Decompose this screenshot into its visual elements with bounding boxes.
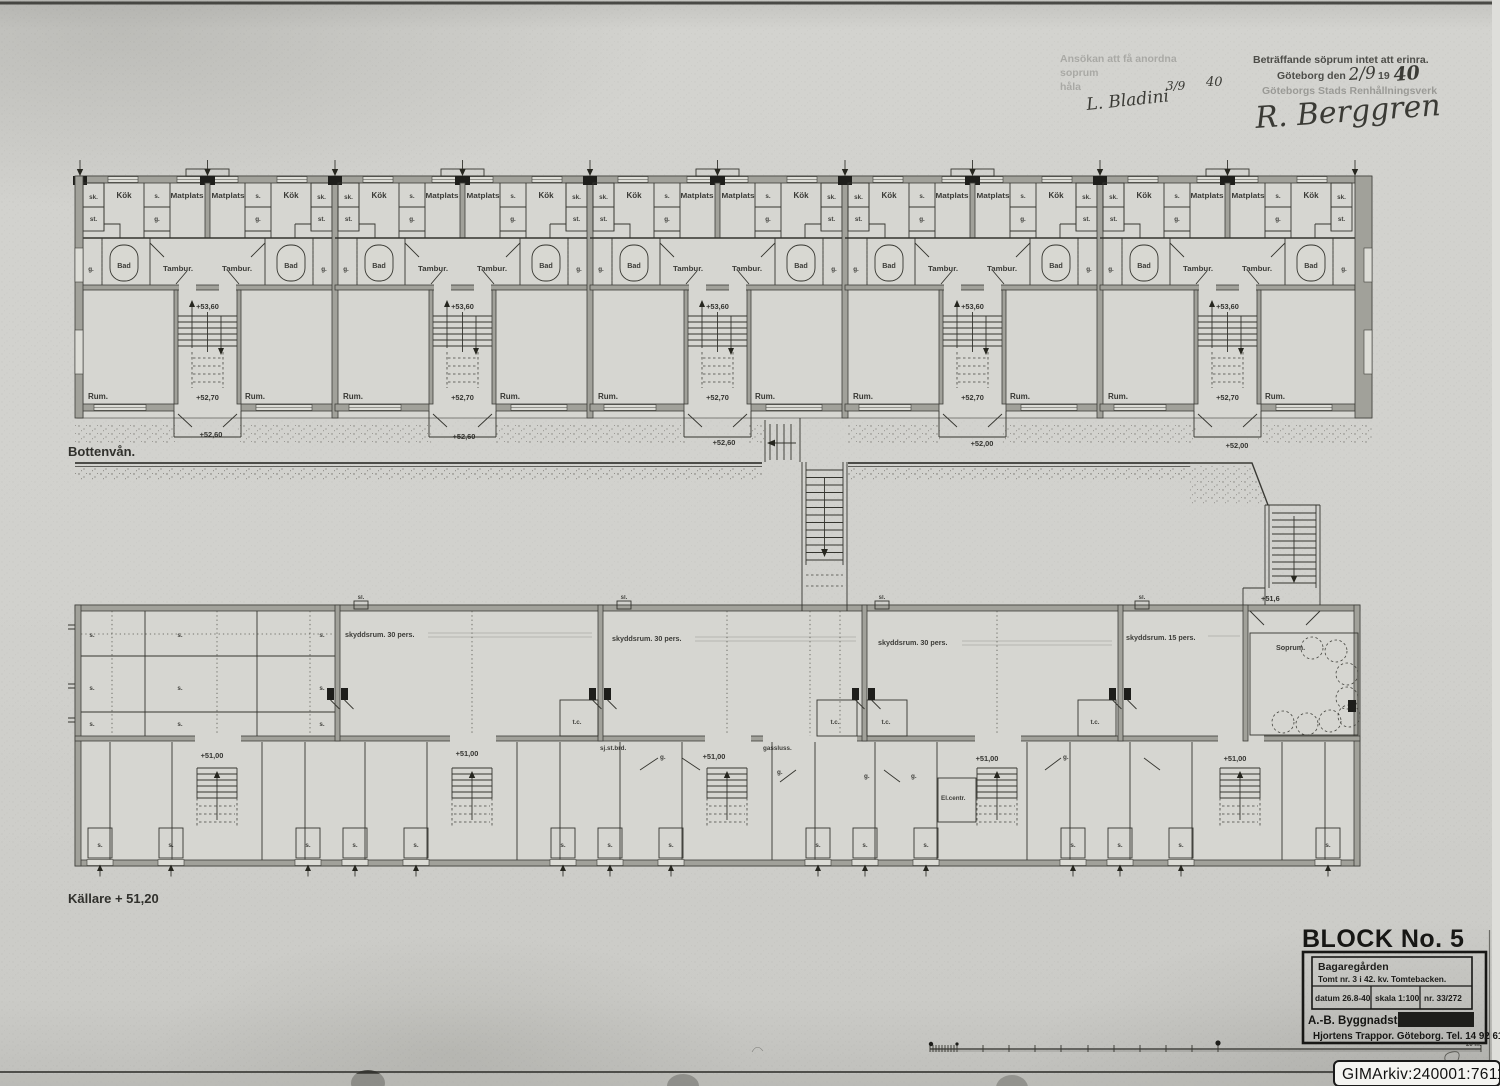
room-label-tc: t.c. <box>572 719 581 726</box>
level-label-entry: +52,00 <box>1226 441 1249 450</box>
level-label-entry: +52,60 <box>200 430 223 439</box>
number-field: nr. 33/272 <box>1424 993 1462 1003</box>
archive-stamp: GIMArkiv:240001:7611 <box>1334 1061 1500 1086</box>
application-stamp-line2: soprum <box>1060 67 1099 79</box>
vent-label-sl: sl. <box>879 595 886 601</box>
paper-artifacts <box>0 0 1500 1086</box>
door-label-g: g. <box>864 773 870 780</box>
signature-left-date: 3/9 <box>1166 79 1186 93</box>
room-label-s: s. <box>319 721 325 728</box>
room-label-s: s. <box>89 632 95 639</box>
application-stamp-line1: Ansökan att få anordna <box>1060 53 1177 65</box>
door-label-g: g. <box>777 769 783 776</box>
company-address: Hjortens Trappor. Göteborg. Tel. 14 92 6… <box>1313 1031 1500 1042</box>
handwritten-date: 2/9 <box>1347 63 1377 85</box>
level-label-entry: +52,60 <box>713 438 736 447</box>
level-label-entry: +52,00 <box>971 439 994 448</box>
shelter-label: skyddsrum. 30 pers. <box>612 634 682 643</box>
room-label-s: s. <box>89 721 95 728</box>
handwritten-year: 40 <box>1393 62 1421 86</box>
level-label-outdoor-stair: +51,6 <box>1261 594 1280 603</box>
room-label-sjstbrd: sj.st.brd. <box>600 745 626 752</box>
room-label-s: s. <box>319 685 325 692</box>
level-label-basement: +51,00 <box>201 751 224 760</box>
blueprint-sheet: sk. st. Kök s. g. Matplats Matplats s. g… <box>0 0 1500 1086</box>
caption-ground-floor: Bottenvån. <box>68 444 135 459</box>
shelter-label: skyddsrum. 15 pers. <box>1126 633 1196 642</box>
vent-label-sl: sl. <box>621 595 628 601</box>
scale-bar-end-label: 20 m. <box>1466 1042 1482 1048</box>
redaction-bar <box>1398 1012 1474 1027</box>
room-label-s: s. <box>177 721 183 728</box>
room-label-tc: t.c. <box>830 719 839 726</box>
door-label-g: g. <box>911 773 917 780</box>
room-label-elcentr: El.centr. <box>941 795 966 802</box>
basement-plan: s. s. s. s. s. s. s. s. s. skyddsrum. 30… <box>68 595 1360 906</box>
door-label-g: g. <box>1063 754 1069 761</box>
shelter-label: skyddsrum. 30 pers. <box>878 638 948 647</box>
level-label-basement: +51,00 <box>1224 754 1247 763</box>
level-label-entry: +52,60 <box>453 432 476 441</box>
archive-id-text: GIMArkiv:240001:7611 <box>1342 1066 1500 1083</box>
vent-label-sl: sl. <box>1139 595 1146 601</box>
remark-stamp-place: Göteborg den <box>1277 70 1346 82</box>
site-name: Tomt nr. 3 i 42. kv. Tomtebacken. <box>1318 974 1446 984</box>
room-label-s: s. <box>177 632 183 639</box>
room-label-s: s. <box>89 685 95 692</box>
room-label-tc: t.c. <box>881 719 890 726</box>
door-label-g: g. <box>660 754 666 761</box>
shelter-label: skyddsrum. 30 pers. <box>345 630 415 639</box>
level-label-basement: +51,00 <box>456 749 479 758</box>
room-label-s: s. <box>319 632 325 639</box>
scale-field: skala 1:100 <box>1375 993 1420 1003</box>
block-title: BLOCK No. 5 <box>1302 925 1464 953</box>
application-stamp-line3: håla <box>1060 81 1081 93</box>
room-label-soprum: Soprum. <box>1276 643 1305 652</box>
room-label-gassluss: gassluss. <box>763 745 792 752</box>
room-label-s: s. <box>177 685 183 692</box>
signature-left-year: 40 <box>1205 75 1223 90</box>
remark-stamp-year: 19 <box>1378 70 1390 82</box>
level-label-basement: +51,00 <box>703 752 726 761</box>
project-name: Bagaregården <box>1318 961 1389 973</box>
vent-label-sl: sl. <box>358 595 365 601</box>
level-label-basement: +51,00 <box>976 754 999 763</box>
room-label-tc: t.c. <box>1090 719 1099 726</box>
date-field: datum 26.8-40 <box>1315 993 1371 1003</box>
caption-basement: Källare + 51,20 <box>68 891 159 906</box>
